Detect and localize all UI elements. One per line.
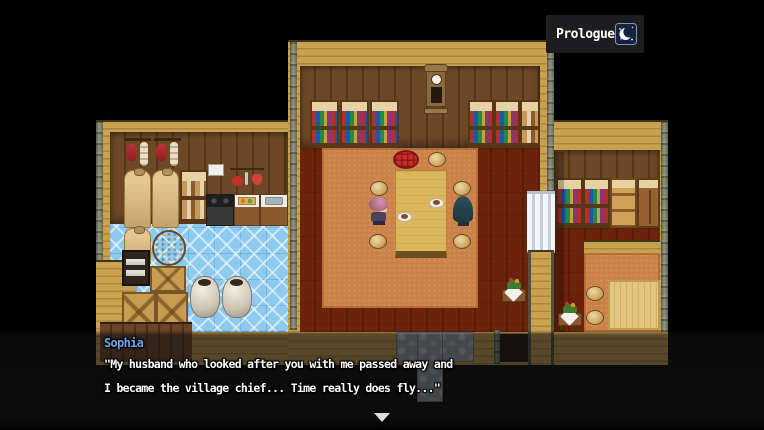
message-line-1: "My husband who looked after you with me… xyxy=(104,357,453,371)
floor-mat xyxy=(608,280,660,330)
hanging-ladle xyxy=(245,172,248,185)
bookshelf xyxy=(583,178,610,228)
bookshelf xyxy=(310,100,339,148)
meat-hook-bar xyxy=(124,138,151,141)
chapter-label: Prologue xyxy=(556,27,615,42)
character-legs xyxy=(373,221,385,225)
character-legs xyxy=(458,222,469,226)
sausage-links xyxy=(170,142,178,166)
bookshelf xyxy=(494,100,520,148)
storage-cabinet xyxy=(122,250,150,286)
speaker-name: Sophia xyxy=(104,336,143,350)
flower-pot xyxy=(507,280,521,289)
flower-table xyxy=(556,304,584,330)
flower-table xyxy=(500,280,528,306)
hanging-pan xyxy=(252,174,262,185)
character-hair xyxy=(369,197,388,211)
stove xyxy=(206,194,234,226)
round-stool xyxy=(586,286,604,301)
message-line-2: I became the village chief... Time reall… xyxy=(104,381,440,395)
round-stool xyxy=(370,181,388,196)
continue-cursor[interactable] xyxy=(374,413,390,422)
utensil-rack xyxy=(230,168,264,194)
character-pink-hair xyxy=(368,196,390,226)
wooden-crate xyxy=(150,266,186,292)
sausage-links xyxy=(140,142,148,166)
window-curtain xyxy=(527,191,555,253)
open-grain-basket xyxy=(152,230,186,266)
character-dark-hair xyxy=(452,196,474,226)
game-screen[interactable]: Sophia "My husband who looked after you … xyxy=(0,0,764,430)
kitchen-sink xyxy=(260,194,288,226)
pantry-shelf xyxy=(520,100,540,148)
corner-post xyxy=(661,122,668,332)
drawer-chest xyxy=(610,178,637,228)
meat-slab xyxy=(126,144,137,161)
location-badge: Prologue xyxy=(546,15,644,53)
corner-post xyxy=(290,42,297,330)
grain-sack xyxy=(152,170,179,228)
character-hair xyxy=(453,196,473,222)
clock-pendulum xyxy=(431,87,442,103)
round-stool xyxy=(369,234,387,249)
grain-sack xyxy=(124,170,151,228)
wall-clock xyxy=(424,64,448,114)
round-stool xyxy=(586,310,604,325)
meat-slab xyxy=(156,144,167,161)
bookshelf xyxy=(370,100,399,148)
plate-with-cup xyxy=(429,198,444,208)
clock-base xyxy=(424,108,448,114)
prep-counter xyxy=(234,194,260,226)
round-stool xyxy=(453,234,471,249)
wall-sign xyxy=(208,164,224,176)
round-stool xyxy=(453,181,471,196)
bookshelf xyxy=(468,100,494,148)
wardrobe xyxy=(637,178,660,228)
flower-pot xyxy=(563,304,577,313)
round-stool xyxy=(428,152,446,167)
kitchen-shelf xyxy=(180,170,208,224)
corner-post xyxy=(547,44,554,192)
red-side-table xyxy=(393,150,419,169)
bookshelf xyxy=(340,100,369,148)
ceramic-pot xyxy=(222,276,252,318)
plate-with-cup xyxy=(397,212,412,222)
clock-face xyxy=(431,74,442,85)
interior-divider-band xyxy=(584,240,660,253)
hanging-pot xyxy=(232,176,243,186)
meat-hook-bar xyxy=(154,138,181,141)
moon-icon xyxy=(615,23,637,45)
ceramic-pot xyxy=(190,276,220,318)
